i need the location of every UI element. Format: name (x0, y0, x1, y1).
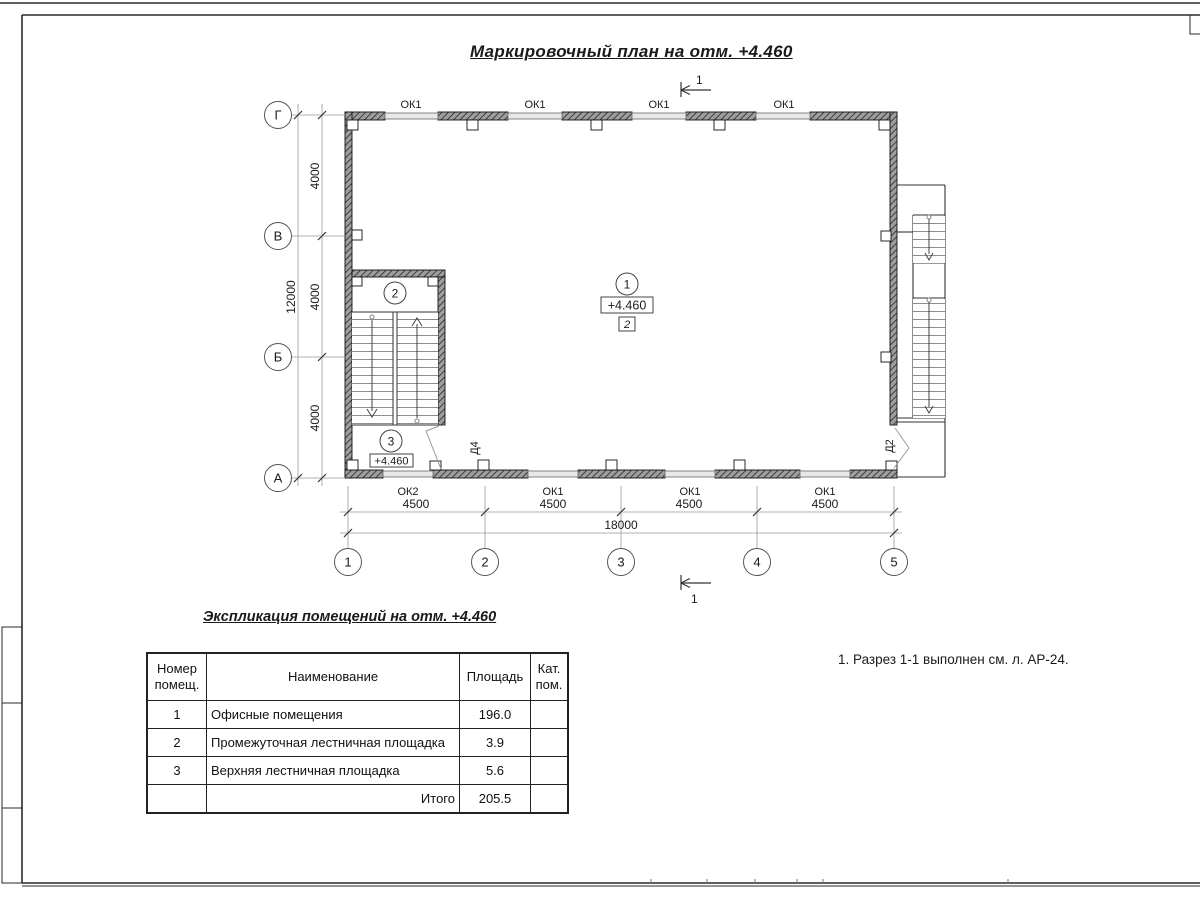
dim-label: 4000 (308, 283, 322, 310)
window-label: ОК1 (648, 99, 669, 111)
table-row: 2 Промежуточная лестничная площадка 3.9 (147, 729, 568, 757)
col-header-name: Наименование (207, 653, 460, 701)
section-note: 1. Разрез 1-1 выполнен см. л. АР-24. (838, 652, 1069, 667)
cell-cat (531, 757, 569, 785)
table-row: 3 Верхняя лестничная площадка 5.6 (147, 757, 568, 785)
room-number: 3 (388, 435, 395, 449)
cell-area: 196.0 (460, 701, 531, 729)
cell-cat (531, 729, 569, 757)
dim-label: 12000 (284, 280, 298, 314)
room-mark-1: 1 +4.460 2 (601, 273, 653, 331)
axis-label: 3 (617, 555, 624, 570)
dim-label: 4000 (308, 404, 322, 431)
col-header-line: Номер (152, 661, 202, 677)
cell-number: 3 (147, 757, 207, 785)
axis-label: В (274, 229, 283, 244)
window-label: ОК1 (773, 99, 794, 111)
plan-title: Маркировочный план на отм. +4.460 (470, 42, 793, 62)
room-number: 1 (624, 278, 631, 292)
axis-label: 2 (481, 555, 488, 570)
window-openings (383, 113, 850, 477)
dim-label: 4500 (676, 497, 703, 511)
door-d2: Д2 (884, 428, 909, 470)
axis-label: А (274, 471, 283, 486)
room-mark-2: 2 (384, 282, 406, 304)
cell-number: 2 (147, 729, 207, 757)
window-label: ОК1 (524, 99, 545, 111)
dim-label: 18000 (604, 518, 638, 532)
total-value: 205.5 (460, 785, 531, 814)
axis-label: 1 (344, 555, 351, 570)
cell-name: Промежуточная лестничная площадка (207, 729, 460, 757)
left-axes: 4000 4000 4000 12000 Г В Б А (265, 102, 346, 492)
cell-number: 1 (147, 701, 207, 729)
door-d4: Д4 (426, 426, 481, 470)
cell-name: Верхняя лестничная площадка (207, 757, 460, 785)
col-header-number: Номер помещ. (147, 653, 207, 701)
axis-label: 5 (890, 555, 897, 570)
cell-name: Офисные помещения (207, 701, 460, 729)
section-mark-top: 1 (681, 73, 711, 97)
col-header-line: помещ. (152, 677, 202, 693)
section-label: 1 (691, 592, 698, 606)
room-mark-3: 3 +4.460 (370, 430, 413, 468)
door-label: Д2 (884, 439, 896, 453)
table-total-row: Итого 205.5 (147, 785, 568, 814)
window-label: ОК1 (400, 99, 421, 111)
col-header-area: Площадь (460, 653, 531, 701)
cell-area: 5.6 (460, 757, 531, 785)
axis-label: Б (274, 350, 283, 365)
axis-label: 4 (753, 555, 760, 570)
elevation-mark: +4.460 (375, 456, 409, 468)
col-header-line: пом. (535, 677, 563, 693)
dim-label: 4500 (540, 497, 567, 511)
axis-label: Г (274, 108, 281, 123)
room-schedule-table: Номер помещ. Наименование Площадь Кат. п… (146, 652, 569, 814)
cell-area: 3.9 (460, 729, 531, 757)
dim-label: 4500 (812, 497, 839, 511)
dim-label: 4000 (308, 162, 322, 189)
table-header-row: Номер помещ. Наименование Площадь Кат. п… (147, 653, 568, 701)
col-header-cat: Кат. пом. (531, 653, 569, 701)
cell-cat (531, 785, 569, 814)
dim-labels-left: 4000 4000 4000 12000 (284, 162, 322, 431)
elevation-mark: +4.460 (608, 299, 647, 313)
bottom-axes: 4500 4500 4500 4500 18000 1 2 3 4 5 (335, 486, 908, 576)
cell-cat (531, 701, 569, 729)
col-header-line: Кат. (535, 661, 563, 677)
cell-number (147, 785, 207, 814)
room-number: 2 (392, 287, 399, 301)
section-label: 1 (696, 73, 703, 87)
category-mark: 2 (623, 319, 630, 331)
door-label: Д4 (469, 441, 481, 455)
dim-label: 4500 (403, 497, 430, 511)
total-label: Итого (207, 785, 460, 814)
drawing-sheet: Д4 Д2 ОК1 ОК1 ОК1 ОК1 ОК2 ОК1 ОК1 ОК1 1 … (0, 0, 1200, 900)
table-row: 1 Офисные помещения 196.0 (147, 701, 568, 729)
schedule-title: Экспликация помещений на отм. +4.460 (203, 609, 496, 625)
section-mark-bottom: 1 (681, 575, 711, 606)
